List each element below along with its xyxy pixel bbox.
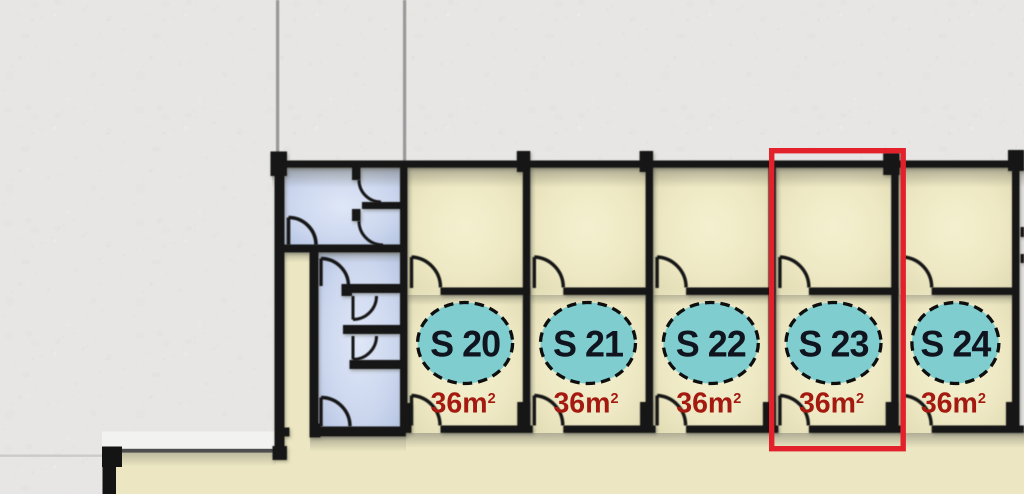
- svg-text:36m2: 36m2: [921, 388, 986, 420]
- svg-text:S 21: S 21: [553, 324, 623, 365]
- svg-text:S 20: S 20: [430, 324, 500, 365]
- svg-text:36m2: 36m2: [553, 388, 618, 420]
- svg-text:S 23: S 23: [799, 324, 869, 365]
- svg-text:36m2: 36m2: [431, 388, 496, 420]
- svg-text:S 24: S 24: [920, 324, 991, 365]
- svg-text:36m2: 36m2: [676, 388, 741, 420]
- svg-text:S 22: S 22: [676, 324, 746, 365]
- svg-text:36m2: 36m2: [799, 388, 864, 420]
